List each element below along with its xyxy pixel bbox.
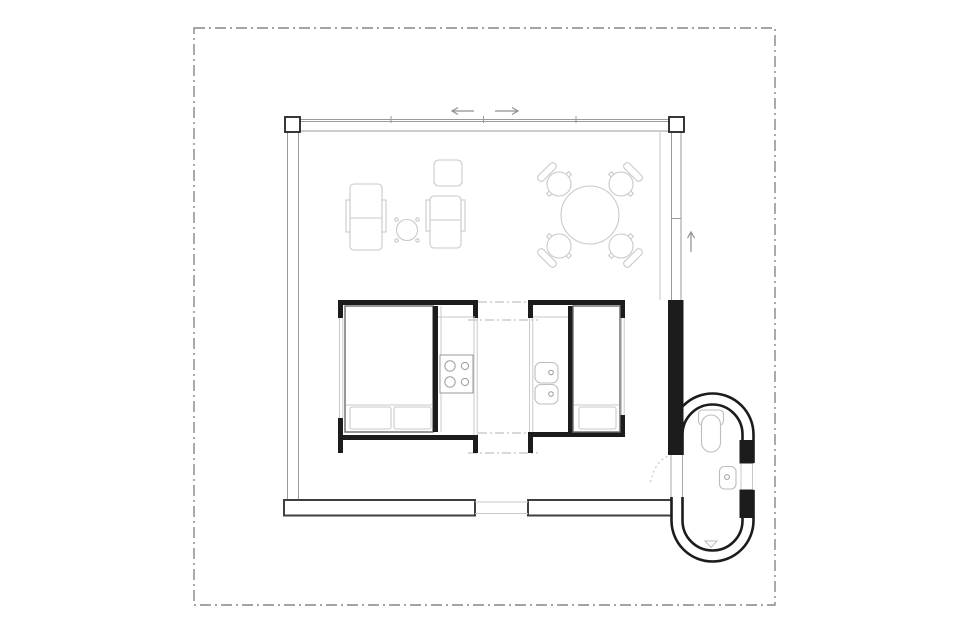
module-joint-lines: [468, 302, 538, 453]
basin: [535, 363, 558, 384]
pillow: [350, 407, 391, 429]
module-right-corner: [528, 437, 533, 453]
bottom-wall-right: [528, 500, 673, 516]
toilet-bowl: [702, 415, 721, 452]
floor-plan-page: [0, 0, 960, 639]
pillow: [579, 407, 616, 429]
dining-set: [534, 159, 647, 272]
module-right-bottom-wall: [528, 432, 625, 437]
double-basin-counter: [535, 363, 558, 405]
module-left-bottom-wall: [338, 435, 478, 440]
column-top-left: [285, 117, 300, 132]
module-right-corner: [620, 305, 625, 318]
living-furniture: [346, 159, 646, 272]
pod-door-clear: [665, 455, 687, 497]
basin: [535, 385, 558, 405]
bathroom-pod: [650, 300, 756, 562]
armrest: [346, 200, 350, 232]
floor-plan-drawing: [0, 0, 960, 639]
module-left-corner: [338, 418, 343, 453]
armrest: [426, 200, 430, 231]
round-side-table: [395, 218, 419, 242]
module-left: [338, 300, 478, 453]
pillow: [394, 407, 431, 429]
column-top-right: [669, 117, 684, 132]
sliding-door-left-arrow-icon: [452, 108, 474, 115]
entry-up-arrow-icon: [688, 232, 695, 252]
pod-niche-jamb: [740, 490, 754, 519]
module-left-corner: [473, 305, 478, 318]
bottom-walls: [284, 500, 673, 516]
module-left-corner: [473, 440, 478, 453]
square-ottoman: [434, 160, 462, 186]
pod-niche-jamb: [740, 440, 754, 464]
door-swing-arc: [650, 457, 668, 486]
module-right-corner: [620, 415, 625, 432]
module-left-corner: [338, 305, 343, 318]
module-right-corner: [528, 305, 533, 318]
armrest: [382, 200, 386, 232]
module-right-top-wall: [528, 300, 625, 305]
module-left-divider-wall: [433, 306, 438, 432]
armrest: [461, 200, 465, 231]
bottom-wall-left: [284, 500, 475, 516]
washbasin: [720, 467, 737, 490]
round-dining-table: [561, 186, 619, 244]
module-left-top-wall: [338, 300, 478, 305]
module-right: [528, 300, 625, 453]
cooktop: [440, 355, 473, 393]
armchair-right: [426, 196, 465, 248]
sliding-door-right-arrow-icon: [495, 108, 518, 115]
armchair-left: [346, 184, 386, 250]
module-right-divider-wall: [568, 306, 573, 432]
pod-stem-wall: [668, 300, 684, 455]
